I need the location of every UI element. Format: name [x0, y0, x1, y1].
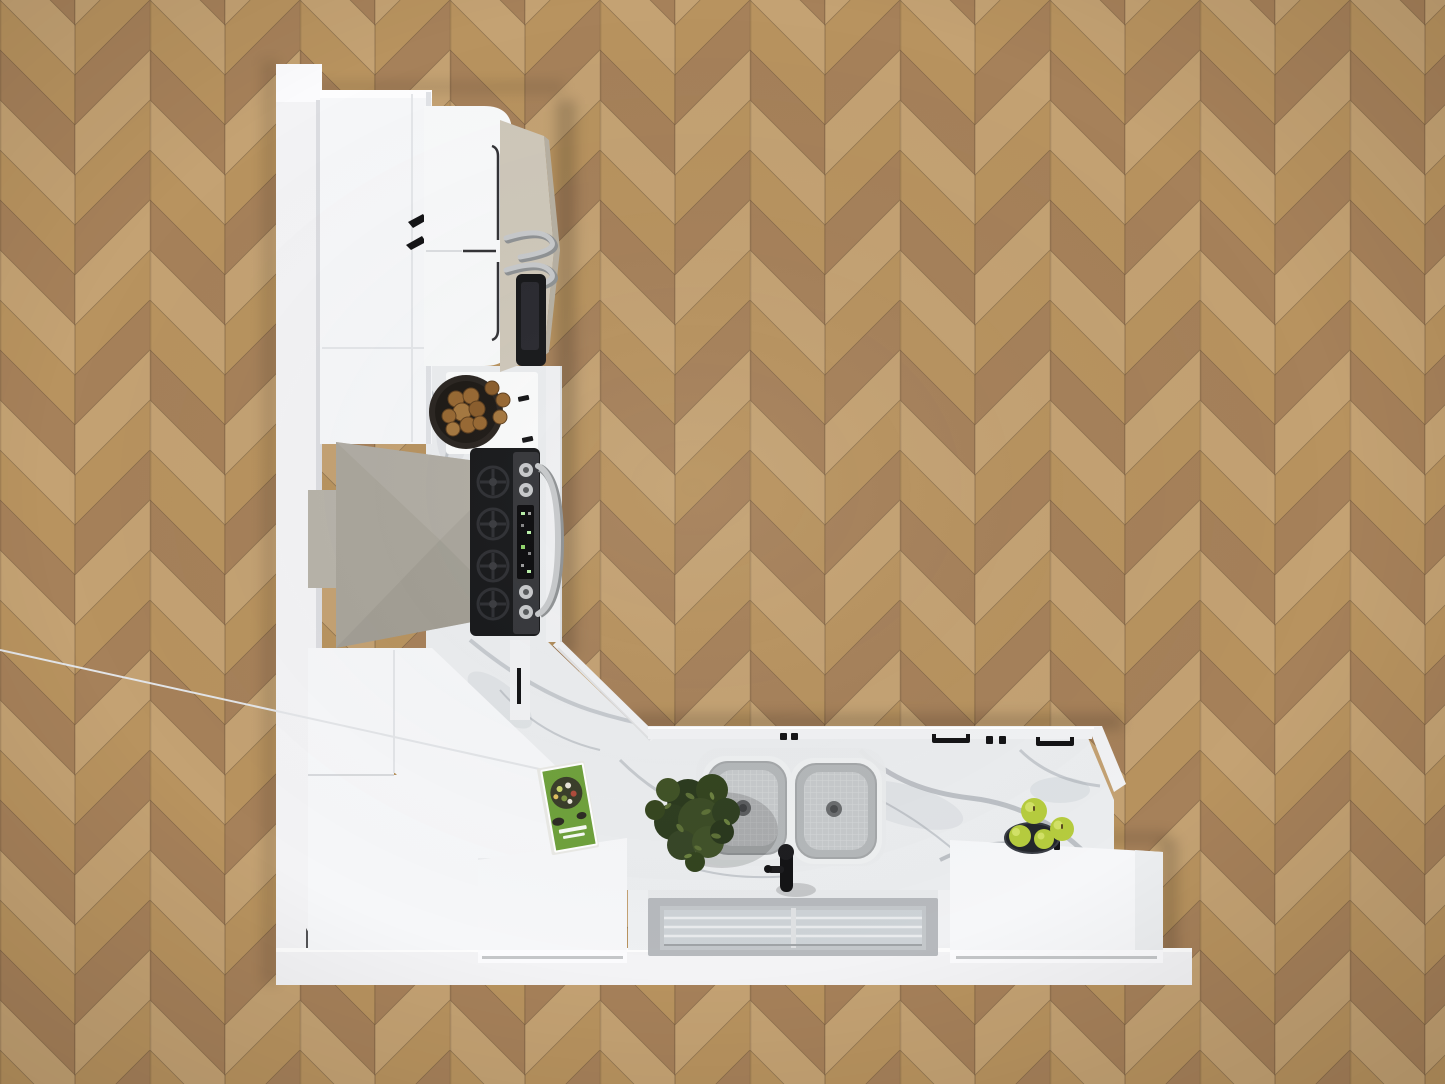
- kitchen-render: [0, 0, 1445, 1084]
- lighting-vignette: [0, 0, 1445, 1084]
